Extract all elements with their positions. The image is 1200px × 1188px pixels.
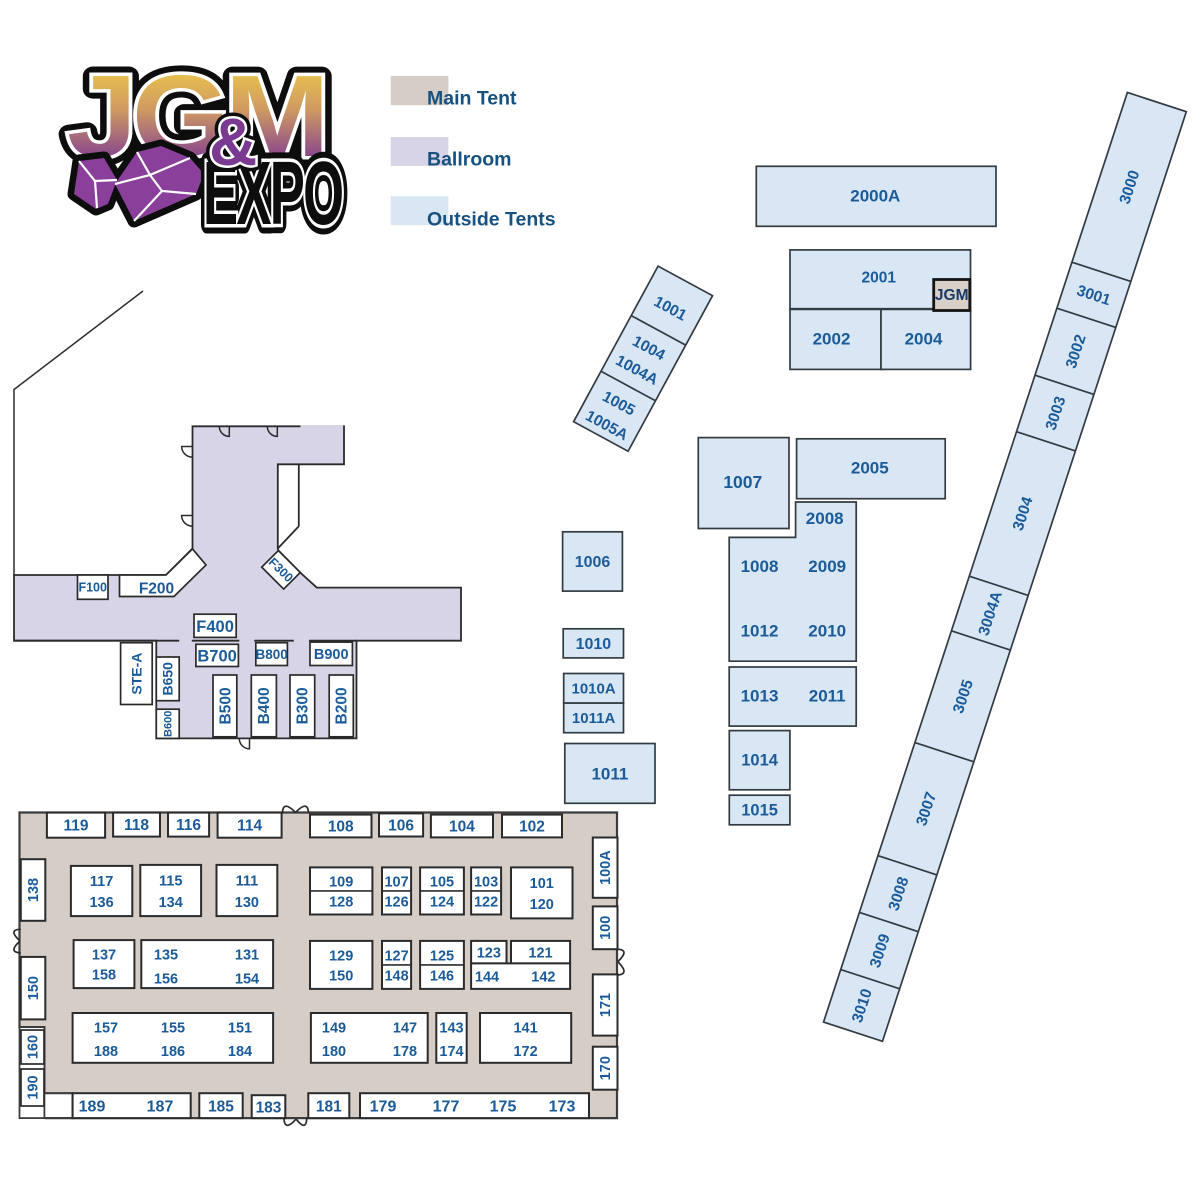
svg-text:1011A: 1011A [572,710,616,727]
svg-text:146: 146 [430,969,454,985]
svg-text:2008: 2008 [806,509,844,528]
svg-text:157: 157 [94,1021,118,1037]
svg-text:1008: 1008 [741,557,779,576]
svg-text:1007: 1007 [723,472,762,492]
svg-text:179: 179 [370,1099,397,1116]
svg-text:Outside Tents: Outside Tents [427,208,556,230]
svg-text:2004: 2004 [905,329,943,348]
svg-text:B500: B500 [217,687,234,724]
svg-text:2001: 2001 [862,270,897,287]
svg-text:100A: 100A [598,850,614,885]
svg-text:130: 130 [235,895,259,911]
svg-text:B800: B800 [255,647,287,662]
svg-text:JGM: JGM [935,287,969,304]
svg-text:187: 187 [147,1099,174,1116]
svg-text:100: 100 [598,916,614,940]
svg-text:B600: B600 [163,711,175,737]
svg-text:127: 127 [384,948,408,964]
svg-text:174: 174 [439,1044,463,1060]
svg-text:&: & [209,105,257,180]
svg-text:114: 114 [237,818,262,835]
svg-text:103: 103 [474,875,498,891]
svg-text:170: 170 [598,1056,614,1080]
svg-text:B200: B200 [334,687,351,724]
svg-text:178: 178 [393,1044,417,1060]
svg-text:1015: 1015 [741,802,778,820]
svg-text:1011: 1011 [591,764,628,783]
svg-text:154: 154 [235,971,259,987]
svg-text:160: 160 [26,1035,42,1059]
svg-text:1010A: 1010A [571,680,615,697]
svg-text:1013: 1013 [741,686,779,705]
svg-text:148: 148 [384,969,408,985]
svg-text:131: 131 [235,947,259,963]
svg-text:126: 126 [384,894,408,910]
svg-text:188: 188 [94,1044,118,1060]
svg-text:STE-A: STE-A [128,653,144,695]
svg-text:117: 117 [90,874,113,890]
svg-text:2009: 2009 [808,557,846,576]
svg-text:171: 171 [598,993,614,1017]
svg-text:150: 150 [26,976,42,1000]
svg-text:B650: B650 [160,662,176,696]
svg-text:B300: B300 [295,687,312,724]
svg-text:116: 116 [176,817,201,834]
svg-text:120: 120 [530,897,554,913]
svg-text:104: 104 [449,818,475,835]
svg-text:1010: 1010 [576,636,612,653]
svg-text:F400: F400 [196,618,234,636]
svg-text:138: 138 [26,878,42,902]
svg-text:111: 111 [236,873,259,889]
svg-text:119: 119 [63,818,88,835]
svg-text:122: 122 [474,894,498,910]
svg-text:183: 183 [256,1099,282,1116]
svg-text:109: 109 [329,875,353,891]
svg-text:142: 142 [531,969,555,985]
svg-text:123: 123 [477,945,501,961]
svg-text:190: 190 [26,1075,42,1099]
svg-text:2005: 2005 [851,459,889,478]
svg-text:134: 134 [159,895,183,911]
svg-text:124: 124 [430,894,454,910]
svg-text:175: 175 [490,1099,517,1116]
svg-text:149: 149 [322,1021,346,1037]
svg-text:143: 143 [439,1021,463,1037]
svg-text:108: 108 [328,818,354,835]
svg-text:186: 186 [161,1044,185,1060]
svg-text:102: 102 [519,818,545,835]
svg-text:141: 141 [513,1021,537,1037]
svg-text:128: 128 [329,894,353,910]
svg-text:106: 106 [388,817,414,834]
svg-text:184: 184 [228,1044,252,1060]
svg-text:173: 173 [549,1099,576,1116]
svg-text:Main Tent: Main Tent [427,87,517,109]
svg-text:156: 156 [154,971,178,987]
svg-text:181: 181 [316,1098,342,1115]
svg-text:137: 137 [92,948,116,964]
svg-text:121: 121 [528,945,552,961]
svg-text:F200: F200 [139,581,174,598]
svg-text:107: 107 [384,875,408,891]
svg-text:B900: B900 [314,647,349,663]
svg-text:1012: 1012 [741,621,779,640]
svg-text:2002: 2002 [813,329,851,348]
svg-text:177: 177 [433,1099,460,1116]
svg-text:129: 129 [329,948,353,964]
svg-text:B400: B400 [256,687,273,724]
svg-text:158: 158 [92,968,116,984]
svg-text:1006: 1006 [575,554,611,571]
svg-text:2010: 2010 [808,621,846,640]
svg-text:135: 135 [154,947,178,963]
svg-text:147: 147 [393,1021,417,1037]
svg-text:155: 155 [161,1021,185,1037]
svg-text:172: 172 [513,1044,537,1060]
svg-text:115: 115 [159,873,182,889]
svg-text:B700: B700 [197,647,236,665]
svg-text:144: 144 [475,969,499,985]
svg-text:1014: 1014 [741,751,779,769]
svg-text:189: 189 [79,1099,106,1116]
svg-text:101: 101 [530,876,554,892]
svg-text:150: 150 [329,969,353,985]
svg-text:105: 105 [430,875,454,891]
svg-text:180: 180 [322,1044,346,1060]
svg-text:F100: F100 [78,581,107,595]
svg-text:151: 151 [228,1021,252,1037]
svg-text:2000A: 2000A [850,186,900,205]
svg-text:Ballroom: Ballroom [427,148,512,170]
svg-text:185: 185 [208,1098,234,1115]
svg-text:125: 125 [430,948,454,964]
svg-text:2011: 2011 [809,686,846,705]
svg-text:118: 118 [124,817,149,834]
svg-text:136: 136 [89,895,113,911]
